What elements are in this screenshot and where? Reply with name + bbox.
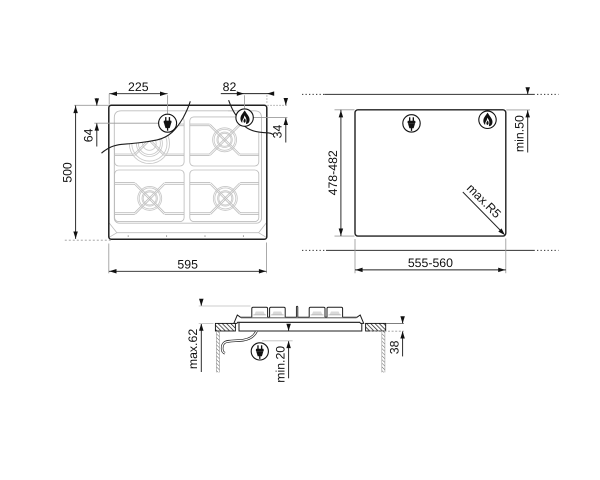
- svg-text:max.62: max.62: [186, 329, 200, 369]
- svg-text:min.50: min.50: [513, 115, 527, 152]
- svg-text:min.20: min.20: [273, 346, 287, 383]
- svg-text:64: 64: [82, 128, 96, 142]
- svg-text:225: 225: [128, 80, 149, 94]
- svg-text:595: 595: [177, 257, 198, 271]
- svg-text:555-560: 555-560: [408, 256, 453, 270]
- svg-text:478-482: 478-482: [326, 150, 340, 195]
- svg-text:500: 500: [61, 162, 75, 183]
- svg-text:38: 38: [388, 340, 402, 354]
- svg-text:34: 34: [271, 125, 285, 139]
- svg-text:82: 82: [223, 80, 237, 94]
